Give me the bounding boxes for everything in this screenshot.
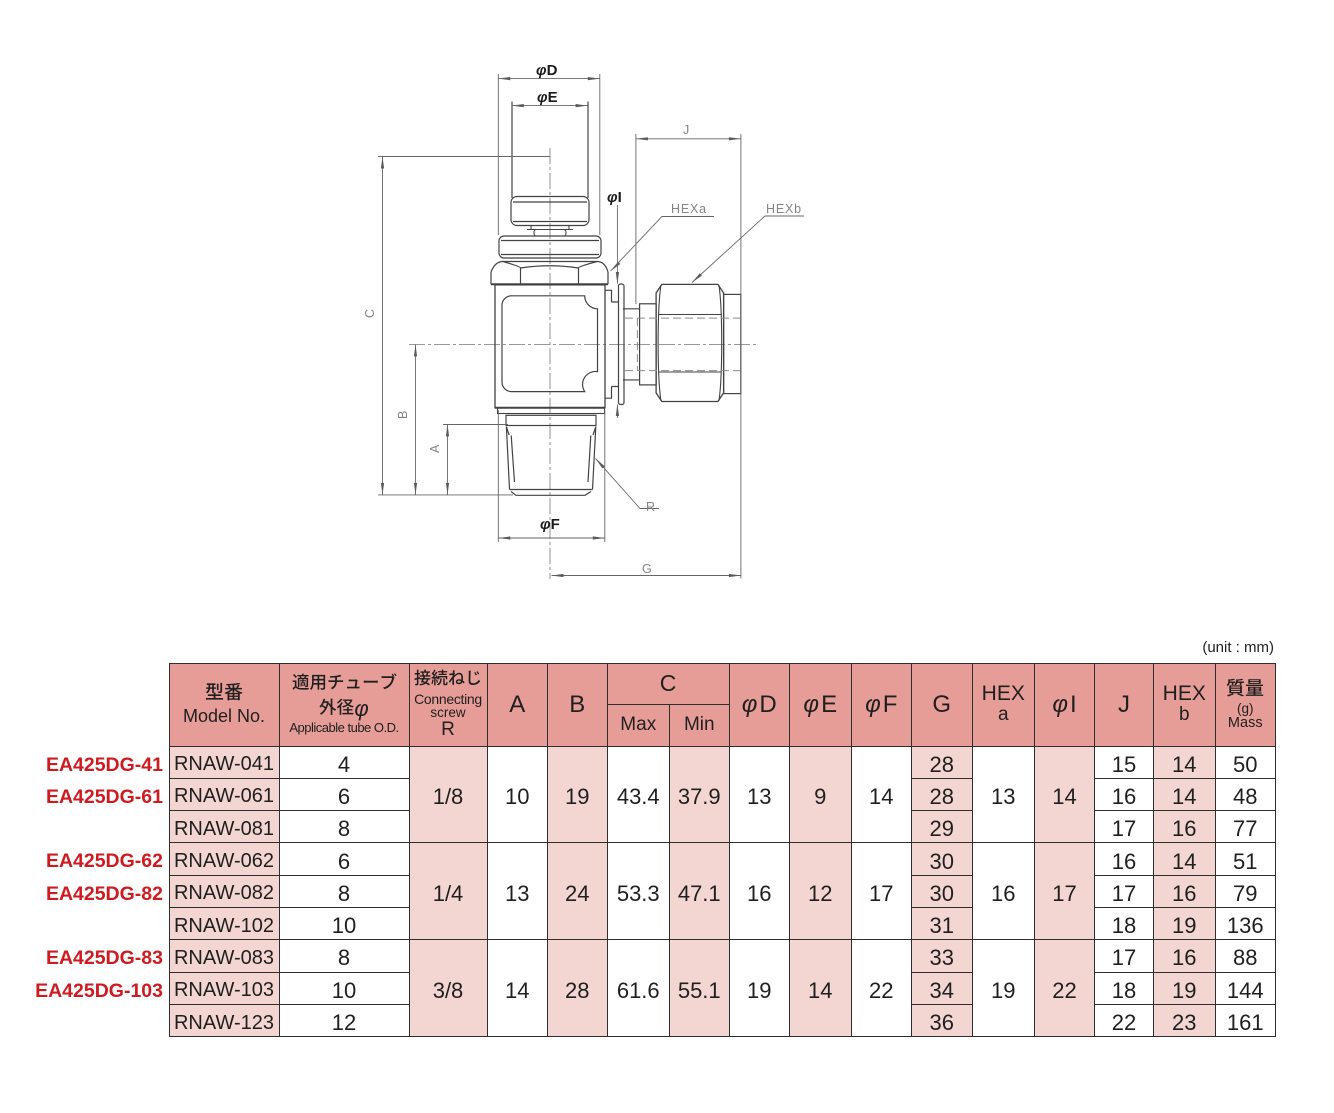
svg-text:G: G [642,562,653,576]
svg-text:HEXb: HEXb [766,202,802,216]
svg-text:B: B [396,410,410,419]
svg-text:HEXa: HEXa [671,202,707,216]
svg-text:φI: φI [607,189,622,206]
svg-text:φF: φF [540,516,560,533]
svg-text:J: J [683,123,690,137]
svg-text:C: C [363,308,377,318]
svg-text:φE: φE [537,89,558,106]
svg-text:φD: φD [536,62,558,79]
svg-text:R: R [646,500,656,514]
svg-text:A: A [428,444,442,453]
